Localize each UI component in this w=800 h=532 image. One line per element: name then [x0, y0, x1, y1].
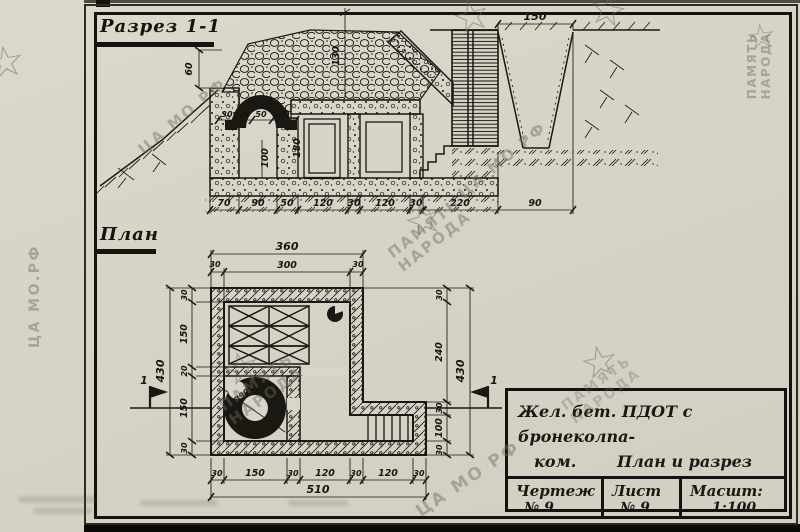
drawing-number-value: № 9 — [524, 500, 595, 516]
scale-label: Масшт: — [690, 482, 778, 500]
dim-label: 30 — [350, 469, 362, 478]
bunks — [229, 306, 309, 364]
dim-label: 30 — [352, 260, 364, 269]
dim-label: 150 — [524, 10, 547, 23]
dim-label: 20 — [180, 365, 189, 377]
dim-label: 30 — [278, 110, 290, 119]
dim-label: 120 — [313, 198, 333, 209]
drawing-number-cell: Чертеж № 9 — [508, 479, 604, 518]
earth-hatch — [585, 45, 639, 138]
cut-marker-label: 1 — [490, 374, 498, 387]
dim-label: 430 — [154, 359, 167, 383]
drawing-title-line2-left: ком. — [534, 450, 576, 475]
scale-value: 1:100 — [690, 500, 778, 516]
dim-label: 30 — [287, 469, 299, 478]
dim-label: 180 — [292, 138, 303, 158]
interior-wall — [348, 114, 360, 178]
earth-under-landing — [452, 148, 498, 178]
dim-label: 220 — [450, 198, 470, 209]
dim-label: 100 — [260, 148, 271, 168]
title-block-main: Жел. бет. ПДОТ с бронеколпа- ком. План и… — [508, 391, 784, 479]
dim-label: 510 — [307, 483, 330, 496]
dim-label: 300 — [277, 260, 297, 271]
trench-tie-marks — [502, 38, 569, 144]
title-block-footer: Чертеж № 9 Лист № 9 Масшт: 1:100 — [508, 479, 784, 518]
dim-label: 30 — [209, 260, 221, 269]
scale-cell: Масшт: 1:100 — [682, 479, 784, 518]
left-wall — [210, 88, 239, 178]
dim-label: 120 — [375, 198, 395, 209]
dim-label: 30 — [435, 402, 444, 414]
dim-label: 50 — [280, 198, 294, 209]
dim-label: 30 — [347, 198, 361, 209]
door-leaf-plan — [303, 368, 347, 375]
scanned-blueprint-page: Разрез 1-1 План — [0, 0, 800, 532]
dim-label: 30 — [221, 110, 233, 119]
section-view: 70 90 50 120 30 120 30 220 90 150 60 30 … — [95, 8, 660, 214]
plan-partition-wall — [224, 367, 300, 376]
dim-label: 120 — [315, 468, 335, 479]
dim-label: 150 — [245, 468, 265, 479]
entrance-niche — [205, 54, 223, 88]
grass-ticks — [505, 22, 650, 30]
drawing-number-label: Чертеж — [516, 482, 595, 500]
wall-slot — [287, 398, 300, 410]
dim-label: 30 — [180, 289, 189, 301]
dim-label: 130 — [331, 46, 342, 66]
cut-marker-right: 1 — [470, 374, 498, 408]
sheet-number-label: Лист — [612, 482, 673, 500]
dim-label: 30 — [435, 289, 444, 301]
dim-label: 20 — [238, 110, 250, 119]
drawing-title-line2-right: План и разрез — [617, 450, 752, 475]
title-block: Жел. бет. ПДОТ с бронеколпа- ком. План и… — [505, 388, 787, 512]
dim-label: 150 — [179, 398, 190, 418]
ceiling-slab — [291, 100, 420, 114]
floor-slab — [210, 178, 498, 196]
earth-under-trench — [498, 150, 658, 166]
dim-label: 430 — [454, 359, 467, 383]
doorway-leaf — [309, 124, 335, 173]
plan-view: Ø90 1 1 360 30 300 30 — [130, 240, 502, 501]
sheet-number-cell: Лист № 9 — [604, 479, 682, 518]
dim-label: 30 — [413, 469, 425, 478]
dim-label: 90 — [528, 198, 542, 209]
dim-label: 70 — [217, 198, 231, 209]
dim-label: 30 — [180, 442, 189, 454]
cut-marker-label: 1 — [140, 374, 148, 387]
dim-label: 90 — [251, 198, 265, 209]
timber-revetment — [452, 30, 498, 146]
interior-wall — [410, 114, 423, 178]
dim-label: 100 — [434, 418, 445, 438]
stairs-section — [420, 146, 452, 178]
dim-label: 30 — [409, 198, 423, 209]
dim-label: 50 — [255, 110, 267, 119]
dim-label: 150 — [179, 324, 190, 344]
dim-label: 240 — [434, 342, 445, 362]
left-slope — [100, 90, 218, 186]
stairs-plan — [368, 415, 408, 441]
earth-hatch — [95, 105, 210, 195]
dim-label: 30 — [211, 469, 223, 478]
dim-label: 360 — [276, 240, 299, 253]
dim-label: 30 — [435, 444, 444, 456]
drawing-title-line1: Жел. бет. ПДОТ с бронеколпа- — [518, 400, 778, 450]
dim-label: 60 — [184, 62, 195, 76]
trench-walls — [498, 32, 573, 148]
sheet-number-value: № 9 — [620, 500, 673, 516]
dim-label: 120 — [378, 468, 398, 479]
vestibule-opening — [366, 122, 402, 172]
